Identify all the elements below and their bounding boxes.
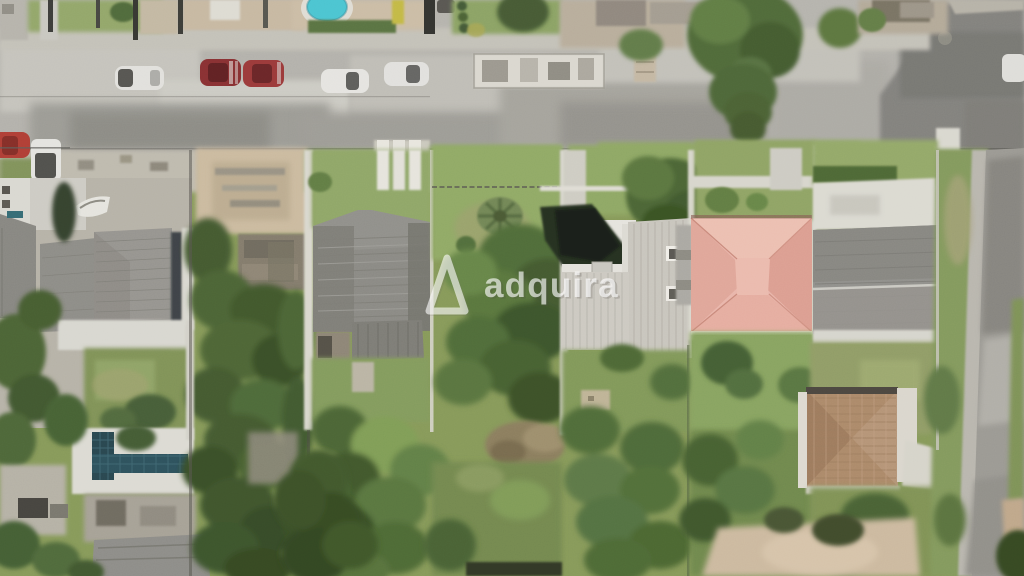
svg-text:adquira: adquira — [484, 266, 619, 305]
